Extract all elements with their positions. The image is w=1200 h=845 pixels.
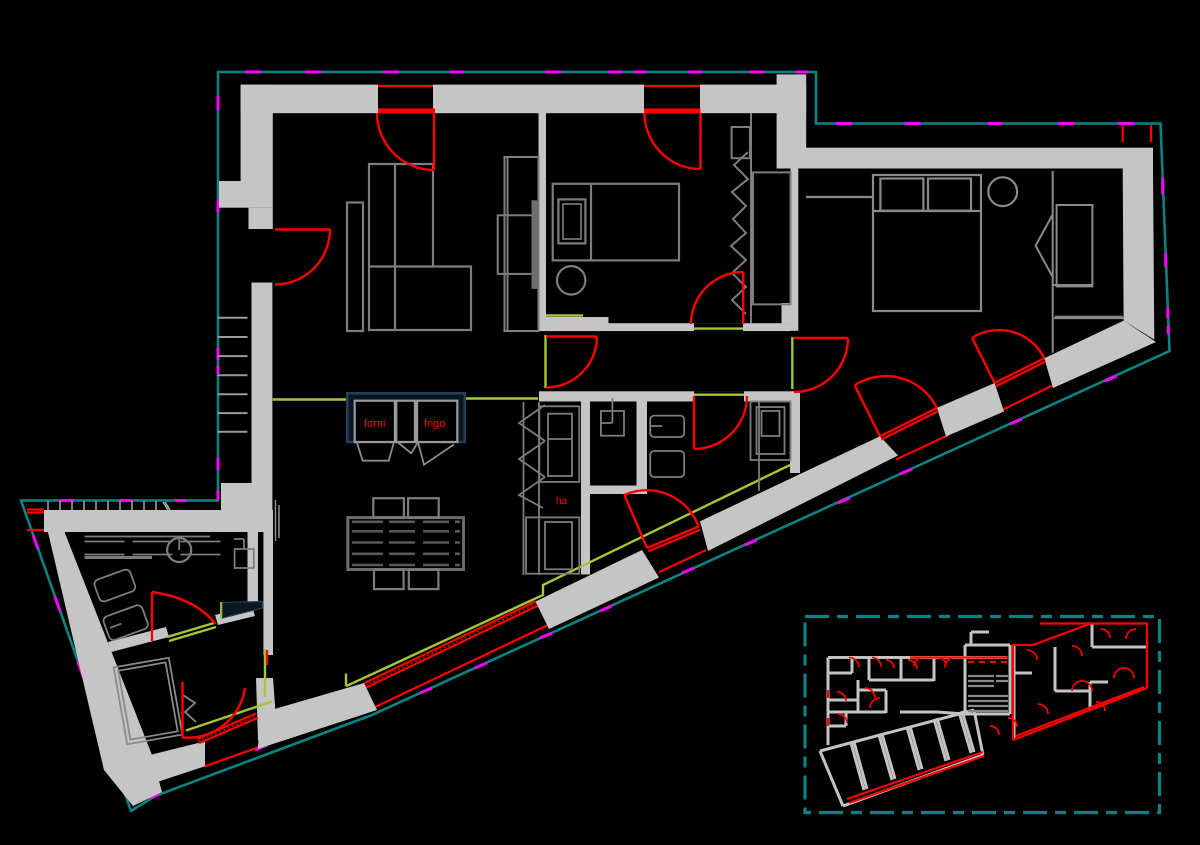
- svg-text:ha: ha: [556, 496, 568, 507]
- svg-text:forni: forni: [364, 418, 385, 430]
- svg-text:frigo: frigo: [424, 418, 445, 430]
